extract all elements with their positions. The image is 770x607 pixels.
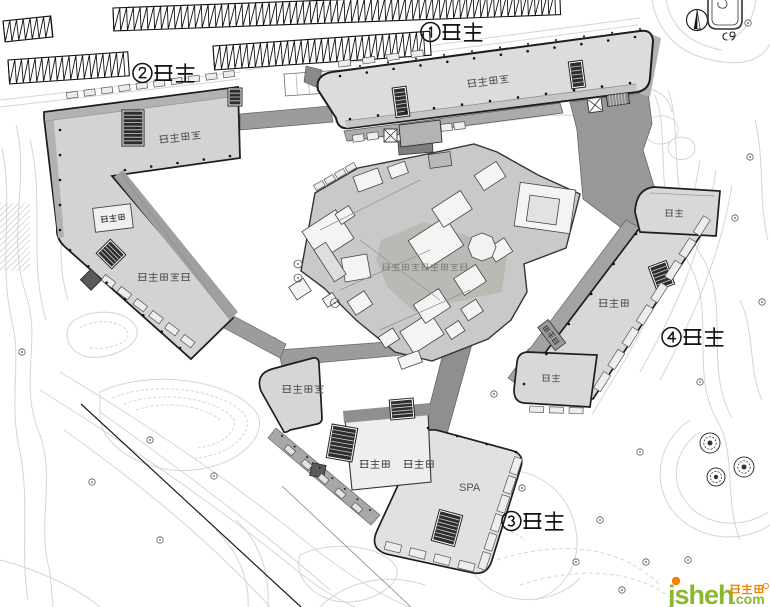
svg-text:.com: .com [732,591,765,607]
svg-text:SPA: SPA [459,482,481,494]
